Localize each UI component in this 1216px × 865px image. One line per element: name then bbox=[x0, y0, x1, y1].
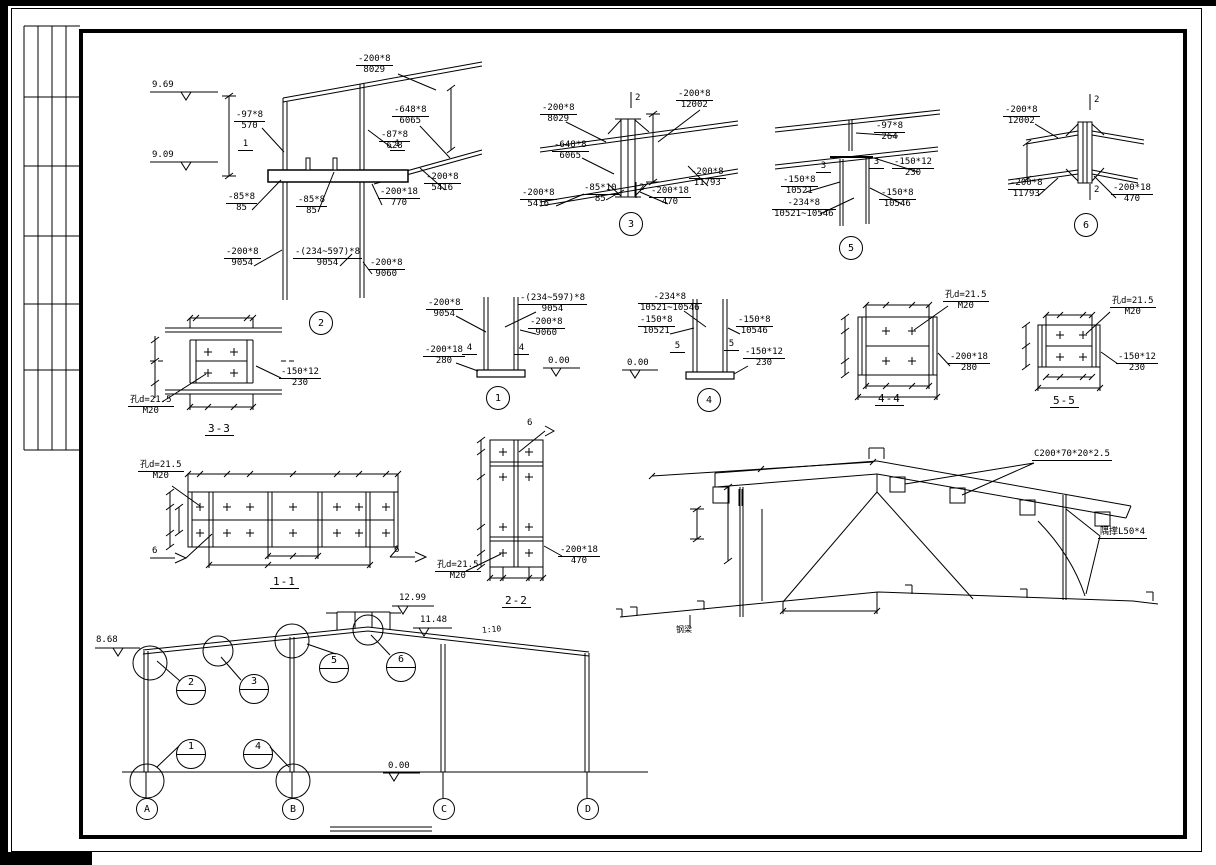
detail-5-5-geometry bbox=[1022, 312, 1118, 391]
dim-callout: -200*18770 bbox=[378, 188, 420, 209]
dim-callout: -150*810546 bbox=[879, 189, 916, 210]
bolt-callout: 孔d=21.5M20 bbox=[128, 396, 174, 417]
dim-callout: -200*18280 bbox=[948, 353, 990, 374]
weld-size: 6 bbox=[394, 546, 399, 555]
detail-title-1-1: 1-1 bbox=[270, 575, 299, 589]
weld-flag-top bbox=[519, 426, 554, 452]
grid-bubble-D: D bbox=[577, 798, 599, 820]
sheet-frame bbox=[0, 0, 1216, 865]
dim-callout: -150*810521 bbox=[781, 176, 818, 197]
dim-callout: -200*811793 bbox=[1008, 179, 1045, 200]
dim-callout: -200*18470 bbox=[1111, 184, 1153, 205]
detail-bubble-2: 2 bbox=[309, 311, 333, 335]
dim-callout: -200*89060 bbox=[368, 259, 405, 280]
dim-callout: -97*8264 bbox=[874, 122, 905, 143]
dim-callout: -85*885 bbox=[296, 196, 327, 217]
bolt-callout: 孔d=21.5M20 bbox=[138, 461, 184, 482]
section-mark: 1 bbox=[390, 140, 405, 151]
section-mark: 3 bbox=[869, 158, 884, 169]
detail-bubble-5: 5 bbox=[839, 236, 863, 260]
dim-callout: -150*12230 bbox=[743, 348, 785, 369]
section-mark: 5 bbox=[670, 342, 685, 353]
weld-flag-left bbox=[150, 534, 212, 563]
dim-callout: -97*8570 bbox=[234, 111, 265, 132]
knee-brace-label: 隅撑L50*4 bbox=[1098, 528, 1147, 539]
level-value: 0.00 bbox=[627, 359, 649, 368]
dim-callout: -200*88029 bbox=[540, 104, 577, 125]
section-mark: 4 bbox=[462, 344, 477, 355]
section-mark: 1 bbox=[238, 140, 253, 151]
detail-4-4-geometry bbox=[841, 302, 950, 400]
dim-callout: -150*12230 bbox=[279, 368, 321, 389]
detail-1-leaders bbox=[456, 312, 536, 371]
weld-size: 6 bbox=[152, 547, 157, 556]
dim-callout: -200*18470 bbox=[649, 187, 691, 208]
section-mark: 2 bbox=[635, 94, 640, 103]
detail-title-5-5: 5-5 bbox=[1050, 394, 1079, 408]
dim-callout: -150*12230 bbox=[1116, 353, 1158, 374]
detail-bubble-1: 1 bbox=[486, 386, 510, 410]
level-ridge: 11.48 bbox=[420, 616, 447, 625]
steel-beam-label: 钢梁 bbox=[676, 626, 692, 634]
dim-callout: -648*86065 bbox=[392, 106, 429, 127]
grid-bubble-A: A bbox=[136, 798, 158, 820]
section-mark: 2 bbox=[1094, 186, 1099, 195]
dim-callout: -85*885 bbox=[226, 193, 257, 214]
detail-bubble-3: 3 bbox=[619, 212, 643, 236]
level-ridge-top: 12.99 bbox=[399, 594, 426, 603]
section-mark: 5 bbox=[724, 340, 739, 351]
dim-callout: -200*811793 bbox=[689, 168, 726, 189]
title-block-table bbox=[24, 26, 80, 450]
callout-bubble-6: 6 bbox=[386, 652, 416, 682]
level-ground: 0.00 bbox=[388, 762, 410, 771]
dim-callout: -200*85416 bbox=[424, 173, 461, 194]
dim-callout: -200*18470 bbox=[558, 546, 600, 567]
dim-callout: -150*810546 bbox=[736, 316, 773, 337]
section-mark: 3 bbox=[816, 162, 831, 173]
roof-brace-detail-geometry bbox=[616, 448, 1158, 629]
bolt-callout: 孔d=21.5M20 bbox=[1110, 297, 1156, 318]
dim-callout: -(234~597)*89054 bbox=[518, 294, 587, 315]
roof-slope-label: 1:10 bbox=[482, 625, 502, 635]
dim-callout: -234*810521~10546 bbox=[638, 293, 702, 314]
cad-drawing-page: { "d": { "d2": { "bubble": "2", "sec": "… bbox=[0, 0, 1216, 865]
elevation-value: 9.69 bbox=[152, 81, 174, 90]
detail-5-5-leaders bbox=[1086, 312, 1118, 364]
dim-callout: -150*810521 bbox=[638, 316, 675, 337]
detail-4-4-leaders bbox=[914, 306, 950, 366]
purlin-label: C200*70*20*2.5 bbox=[1032, 450, 1112, 461]
dim-callout: -234*810521~10546 bbox=[772, 199, 836, 220]
dim-callout: -200*89054 bbox=[426, 299, 463, 320]
dim-callout: -648*86065 bbox=[552, 141, 589, 162]
frame-elevation-geometry bbox=[95, 606, 648, 831]
detail-bubble-4: 4 bbox=[697, 388, 721, 412]
level-eave: 8.68 bbox=[96, 636, 118, 645]
level-value: 0.00 bbox=[548, 357, 570, 366]
section-mark: 4 bbox=[514, 344, 529, 355]
detail-2-2-geometry bbox=[466, 426, 562, 581]
section-mark: 2 bbox=[1094, 96, 1099, 105]
callout-bubble-1: 1 bbox=[176, 739, 206, 769]
detail-1-1-leaders bbox=[172, 486, 200, 506]
dim-callout: -200*89060 bbox=[528, 318, 565, 339]
elevation-value: 9.09 bbox=[152, 151, 174, 160]
bolt-callout: 孔d=21.5M20 bbox=[943, 291, 989, 312]
dim-callout: -150*12230 bbox=[892, 158, 934, 179]
dim-callout: -200*812002 bbox=[676, 90, 713, 111]
dim-callout: -200*89054 bbox=[224, 248, 261, 269]
callout-bubble-2: 2 bbox=[176, 675, 206, 705]
dim-callout: -200*18280 bbox=[423, 346, 465, 367]
detail-3-3-leaders bbox=[162, 366, 281, 402]
dim-callout: -200*85416 bbox=[520, 189, 557, 210]
callout-bubble-5: 5 bbox=[319, 653, 349, 683]
detail-title-2-2: 2-2 bbox=[502, 594, 531, 608]
grid-bubble-C: C bbox=[433, 798, 455, 820]
detail-bubble-6: 6 bbox=[1074, 213, 1098, 237]
detail-title-4-4: 4-4 bbox=[875, 392, 904, 406]
dim-callout: -200*88029 bbox=[356, 55, 393, 76]
callout-bubble-3: 3 bbox=[239, 674, 269, 704]
drawing-canvas bbox=[0, 0, 1216, 865]
detail-title-3-3: 3-3 bbox=[205, 422, 234, 436]
callout-bubble-4: 4 bbox=[243, 739, 273, 769]
detail-1-1-geometry bbox=[150, 471, 426, 568]
dim-callout: -(234~597)*89054 bbox=[293, 248, 362, 269]
dim-callout: -200*812002 bbox=[1003, 106, 1040, 127]
section-mark: 2 bbox=[639, 184, 644, 193]
bolt-callout: 孔d=21.5M20 bbox=[435, 561, 481, 582]
weld-size: 6 bbox=[527, 419, 532, 428]
grid-bubble-B: B bbox=[282, 798, 304, 820]
dim-callout: -85*1085 bbox=[582, 184, 619, 205]
